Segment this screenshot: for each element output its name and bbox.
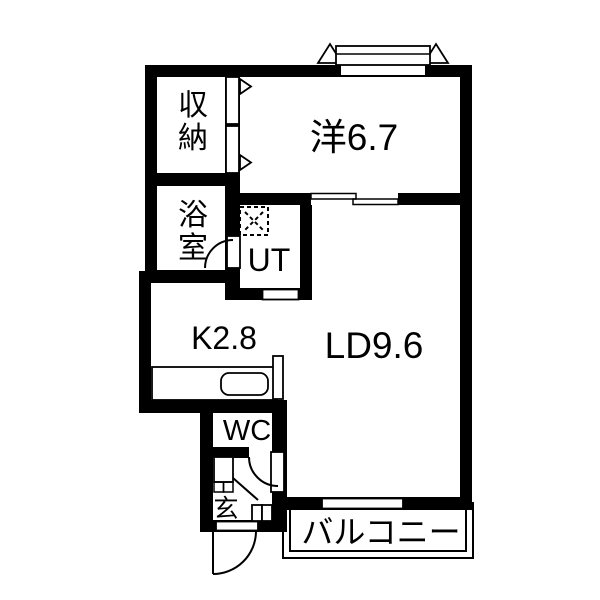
toilet-door-symbol [249,452,284,492]
shoe-cabinet-cell [224,482,234,492]
sliding-door-symbol [311,193,398,205]
entrance-side-boxes [252,505,272,521]
wall-left-kitchen [139,271,151,413]
shoe-cabinet-symbol [214,457,233,492]
shoe-cabinet-cell [214,482,224,492]
room-label-entrance: 玄 [213,495,238,523]
washer-pan-outline [240,207,268,235]
closet-door-arrow-icon [240,155,251,170]
wall-entrance-left [200,400,213,532]
room-label-toilet: WC [223,415,271,447]
balcony-window [322,499,403,509]
floor-plan: 収納 洋6.7 浴室 UT K2.8 LD9.6 WC 玄 バルコニー [0,0,600,600]
room-label-kitchen: K2.8 [191,320,257,356]
entrance-box-cell [252,505,262,521]
room-label-bath: 浴室 [178,199,208,265]
kitchen-sink [221,373,268,395]
window-wall-gap [341,65,425,75]
closet-door-arrow-icon [240,79,251,94]
utility-opening [263,290,299,300]
closet-door-panel-top [226,77,239,124]
wall-storage-bottom [145,173,240,186]
room-label-balcony: バルコニー [301,514,460,550]
entrance-box-cell [262,505,272,521]
wall-right [460,65,472,510]
room-label-western: 洋6.7 [310,117,398,158]
room-label-utility: UT [248,242,291,278]
kitchen-counter-end-panel [273,356,283,399]
closet-door-panel-bottom [226,126,239,173]
entrance-door-arc [213,532,256,574]
wall-bath-bottom [145,270,240,283]
window-frame [336,46,430,65]
wall-utility-right [300,193,312,300]
bath-door-symbol [205,236,240,268]
shoe-cabinet [214,457,233,482]
washing-machine-pan-symbol [240,207,268,235]
kitchen-counter-symbol [152,356,283,400]
entrance-door-symbol [213,522,258,575]
room-label-living: LD9.6 [325,325,424,366]
room-label-storage: 収納 [178,89,208,155]
